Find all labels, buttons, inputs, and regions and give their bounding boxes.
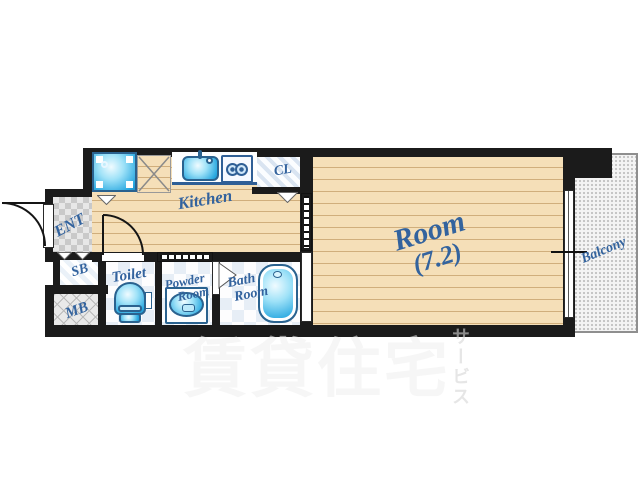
closet-label: CL xyxy=(273,162,293,181)
floorplan: Kitchen CL Room (7.2) Balcony ENT SB MB … xyxy=(0,0,640,480)
toilet-door-swing-icon xyxy=(98,210,148,265)
pan-corner xyxy=(126,181,133,188)
stove-icon xyxy=(221,155,253,183)
entrance-door-swing-icon xyxy=(0,195,50,251)
balcony-window xyxy=(564,190,574,318)
toilet-base-icon xyxy=(119,313,141,323)
drain-icon xyxy=(101,161,108,168)
faucet-icon xyxy=(198,150,202,159)
closet-door-marker-icon xyxy=(277,192,298,203)
wall-corner-block xyxy=(565,148,612,178)
washing-machine-pan-icon xyxy=(92,152,137,192)
faucet-knob-icon xyxy=(206,157,213,164)
toilet-tank-lever-icon xyxy=(145,292,152,309)
burner-icon xyxy=(235,163,248,176)
kitchen-sink-icon xyxy=(182,156,219,181)
refrigerator-space-icon xyxy=(137,155,171,193)
bathtub-faucet-icon xyxy=(273,271,282,278)
room-door-pocket xyxy=(301,252,312,322)
entrance-step-marker-icon xyxy=(57,252,72,260)
watermark-vertical-text: サービス xyxy=(446,327,472,407)
pan-corner xyxy=(126,156,133,163)
room-sliding-door-icon xyxy=(301,193,312,251)
window-pane-divider xyxy=(568,191,569,317)
washer-door-marker-icon xyxy=(97,195,116,205)
entrance-step-marker-icon xyxy=(75,252,90,260)
basin-drain-icon xyxy=(182,304,195,312)
pan-corner xyxy=(96,181,103,188)
toilet-seat-icon xyxy=(118,305,142,312)
wall-toilet-powder xyxy=(155,254,162,337)
powder-room-folding-door-icon xyxy=(157,252,213,262)
